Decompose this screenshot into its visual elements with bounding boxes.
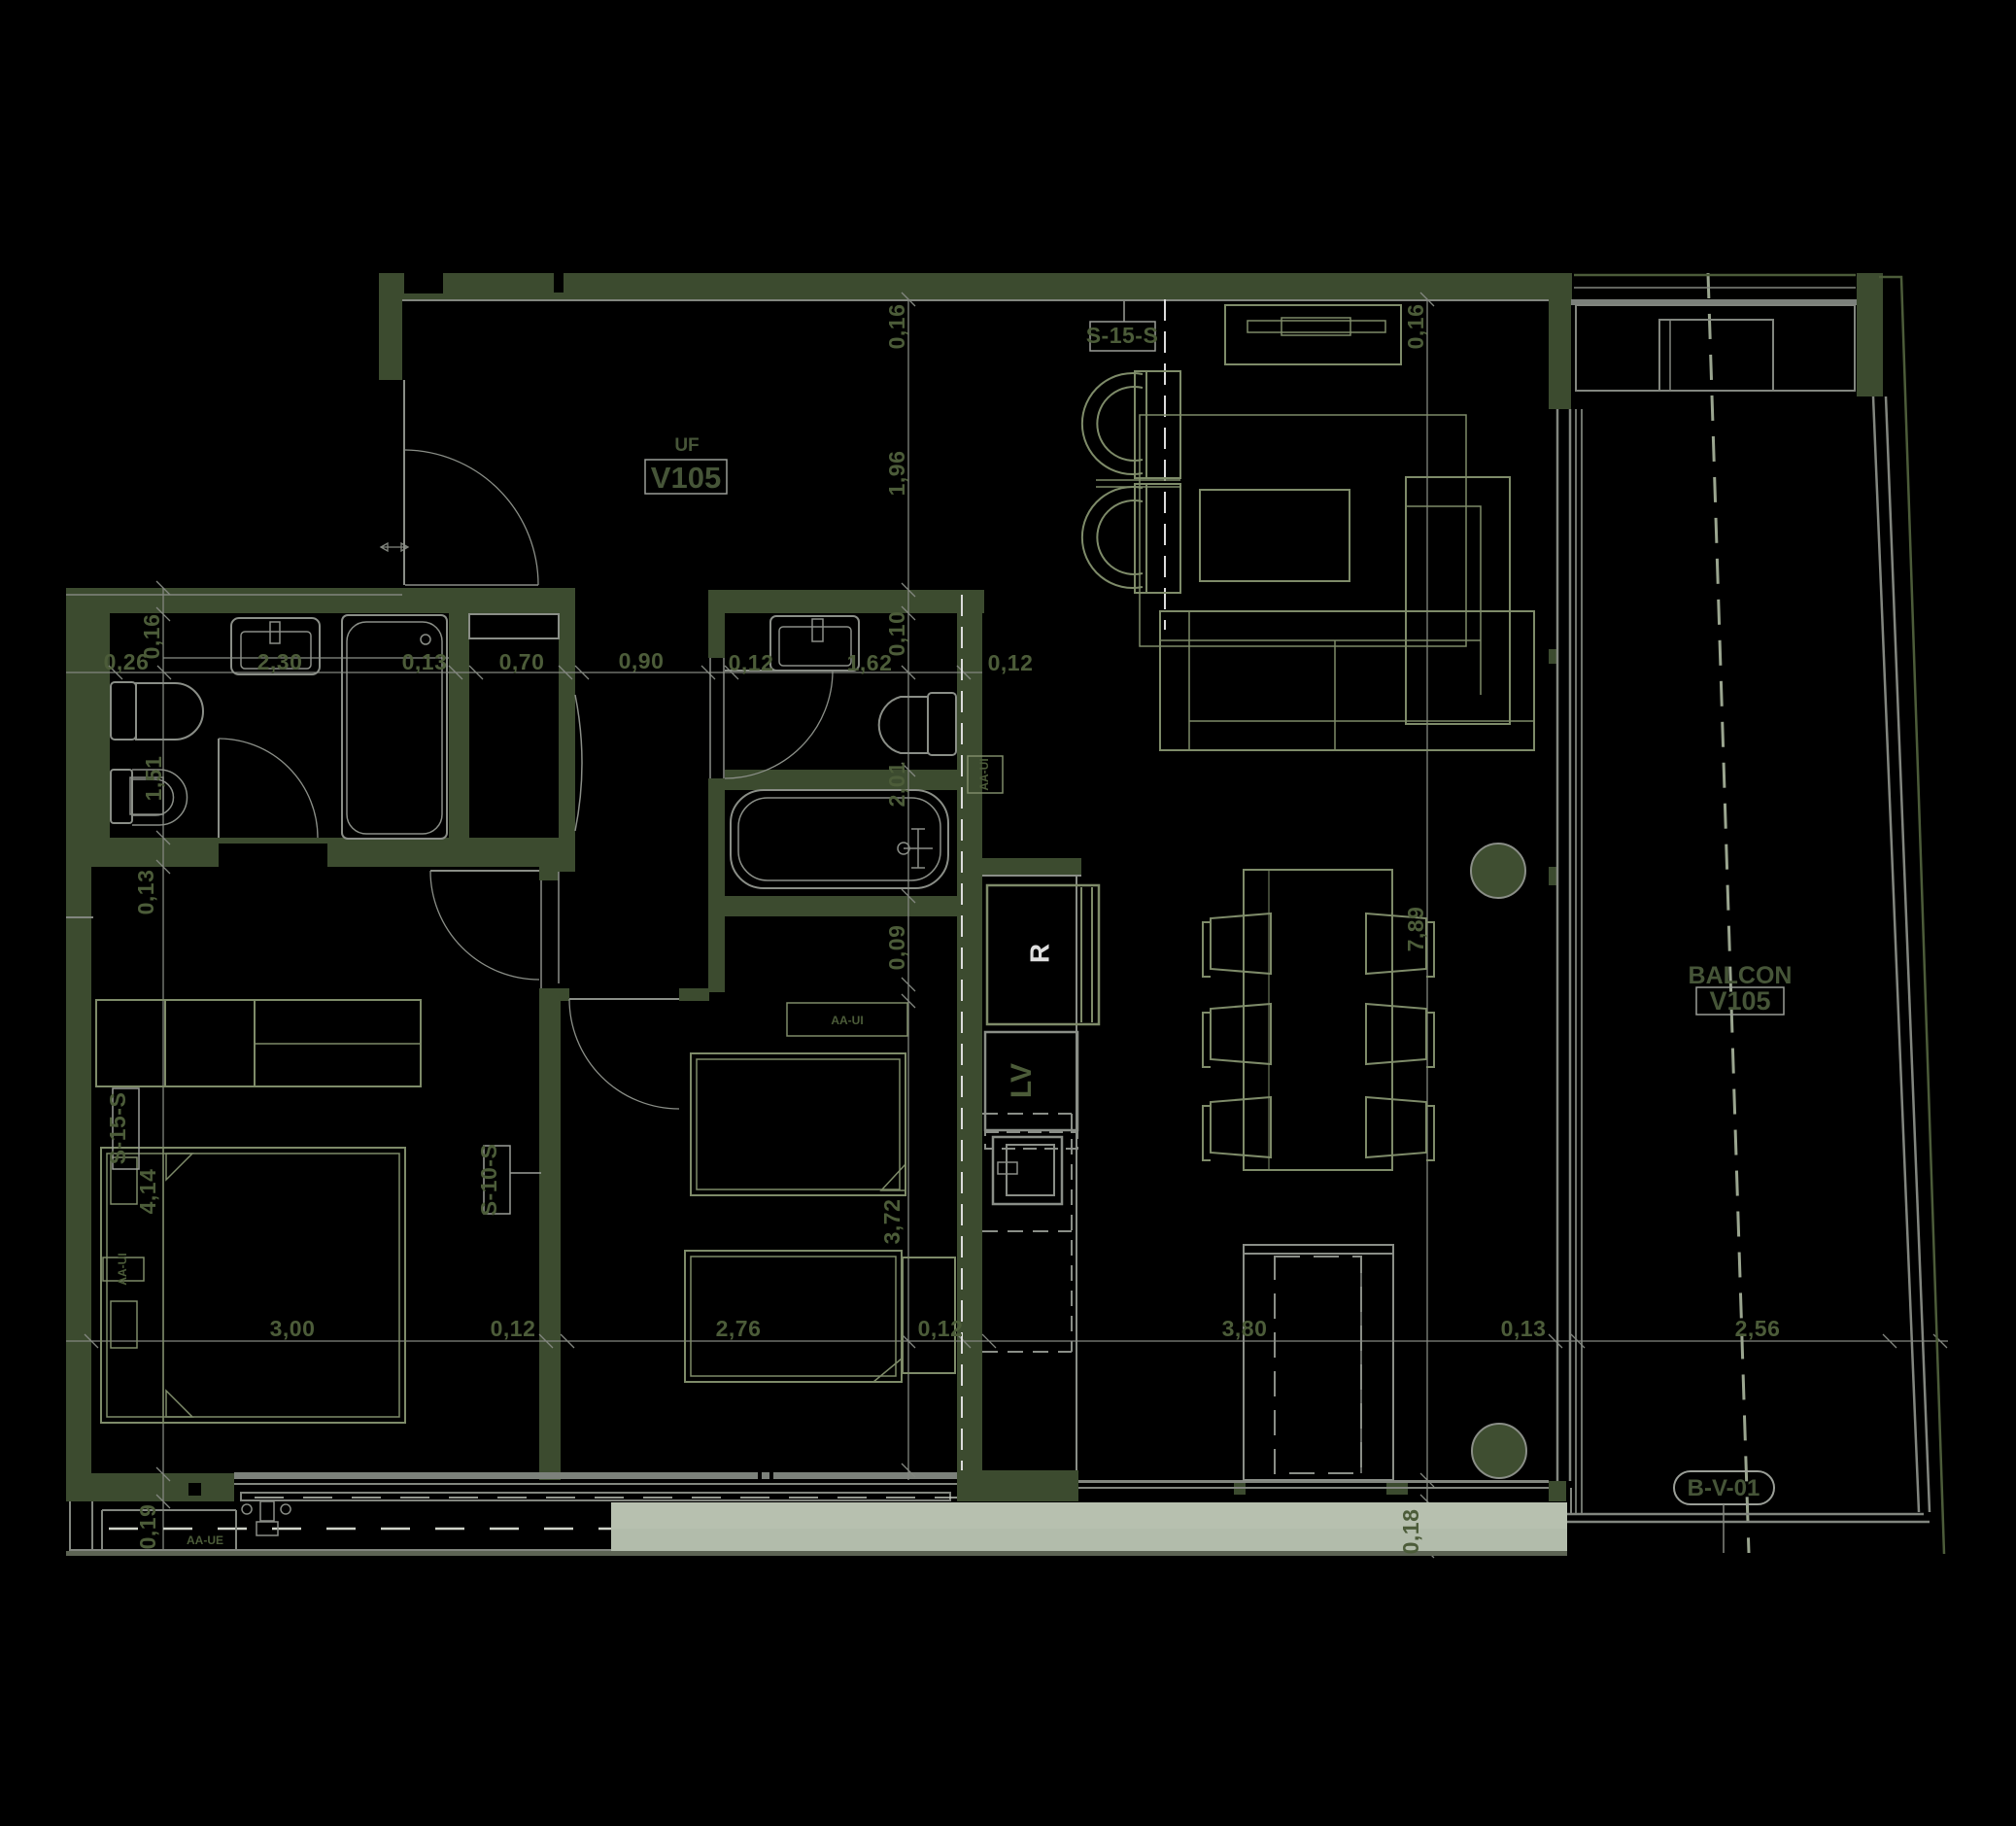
svg-text:1,51: 1,51: [141, 756, 166, 802]
svg-text:V105: V105: [1709, 986, 1770, 1016]
svg-text:3,72: 3,72: [879, 1199, 905, 1245]
svg-text:R: R: [1024, 944, 1054, 963]
svg-text:3,80: 3,80: [1222, 1316, 1268, 1341]
svg-text:0,16: 0,16: [1403, 304, 1428, 350]
svg-text:0,12: 0,12: [918, 1316, 964, 1341]
svg-text:2,56: 2,56: [1735, 1316, 1781, 1341]
svg-text:4,14: 4,14: [135, 1169, 160, 1215]
svg-text:0,18: 0,18: [1398, 1509, 1423, 1555]
svg-text:0,12: 0,12: [729, 650, 774, 675]
svg-text:2,30: 2,30: [257, 649, 303, 674]
svg-text:0,70: 0,70: [499, 649, 545, 674]
svg-text:AA-UE: AA-UE: [187, 1533, 223, 1547]
svg-text:AA-UI: AA-UI: [831, 1014, 863, 1027]
svg-text:BALCON: BALCON: [1689, 962, 1793, 989]
svg-text:V105: V105: [651, 461, 721, 495]
svg-text:7,89: 7,89: [1403, 907, 1428, 952]
svg-text:0,13: 0,13: [1501, 1316, 1547, 1341]
svg-text:3,00: 3,00: [270, 1316, 316, 1341]
svg-text:S-15-S: S-15-S: [1086, 323, 1159, 348]
svg-text:S-10-S: S-10-S: [476, 1144, 501, 1217]
svg-text:0,12: 0,12: [491, 1316, 536, 1341]
svg-text:AA-UI: AA-UI: [977, 758, 991, 790]
svg-text:AA-UI: AA-UI: [116, 1253, 129, 1285]
svg-text:0,10: 0,10: [884, 611, 909, 657]
svg-text:0,09: 0,09: [884, 925, 909, 971]
svg-text:0,90: 0,90: [619, 648, 665, 673]
svg-text:UF: UF: [674, 435, 699, 456]
svg-text:0,13: 0,13: [402, 649, 448, 674]
svg-text:S-15-S: S-15-S: [105, 1092, 130, 1165]
svg-text:B-V-01: B-V-01: [1688, 1475, 1760, 1501]
svg-text:2,76: 2,76: [716, 1316, 762, 1341]
svg-text:0,16: 0,16: [139, 614, 164, 660]
svg-text:0,12: 0,12: [988, 650, 1034, 675]
svg-text:2,01: 2,01: [884, 762, 909, 808]
svg-text:0,13: 0,13: [133, 870, 158, 915]
svg-text:0,16: 0,16: [884, 304, 909, 350]
svg-text:LV: LV: [1006, 1063, 1038, 1098]
svg-text:1,96: 1,96: [884, 451, 909, 497]
svg-text:0,19: 0,19: [135, 1504, 160, 1550]
